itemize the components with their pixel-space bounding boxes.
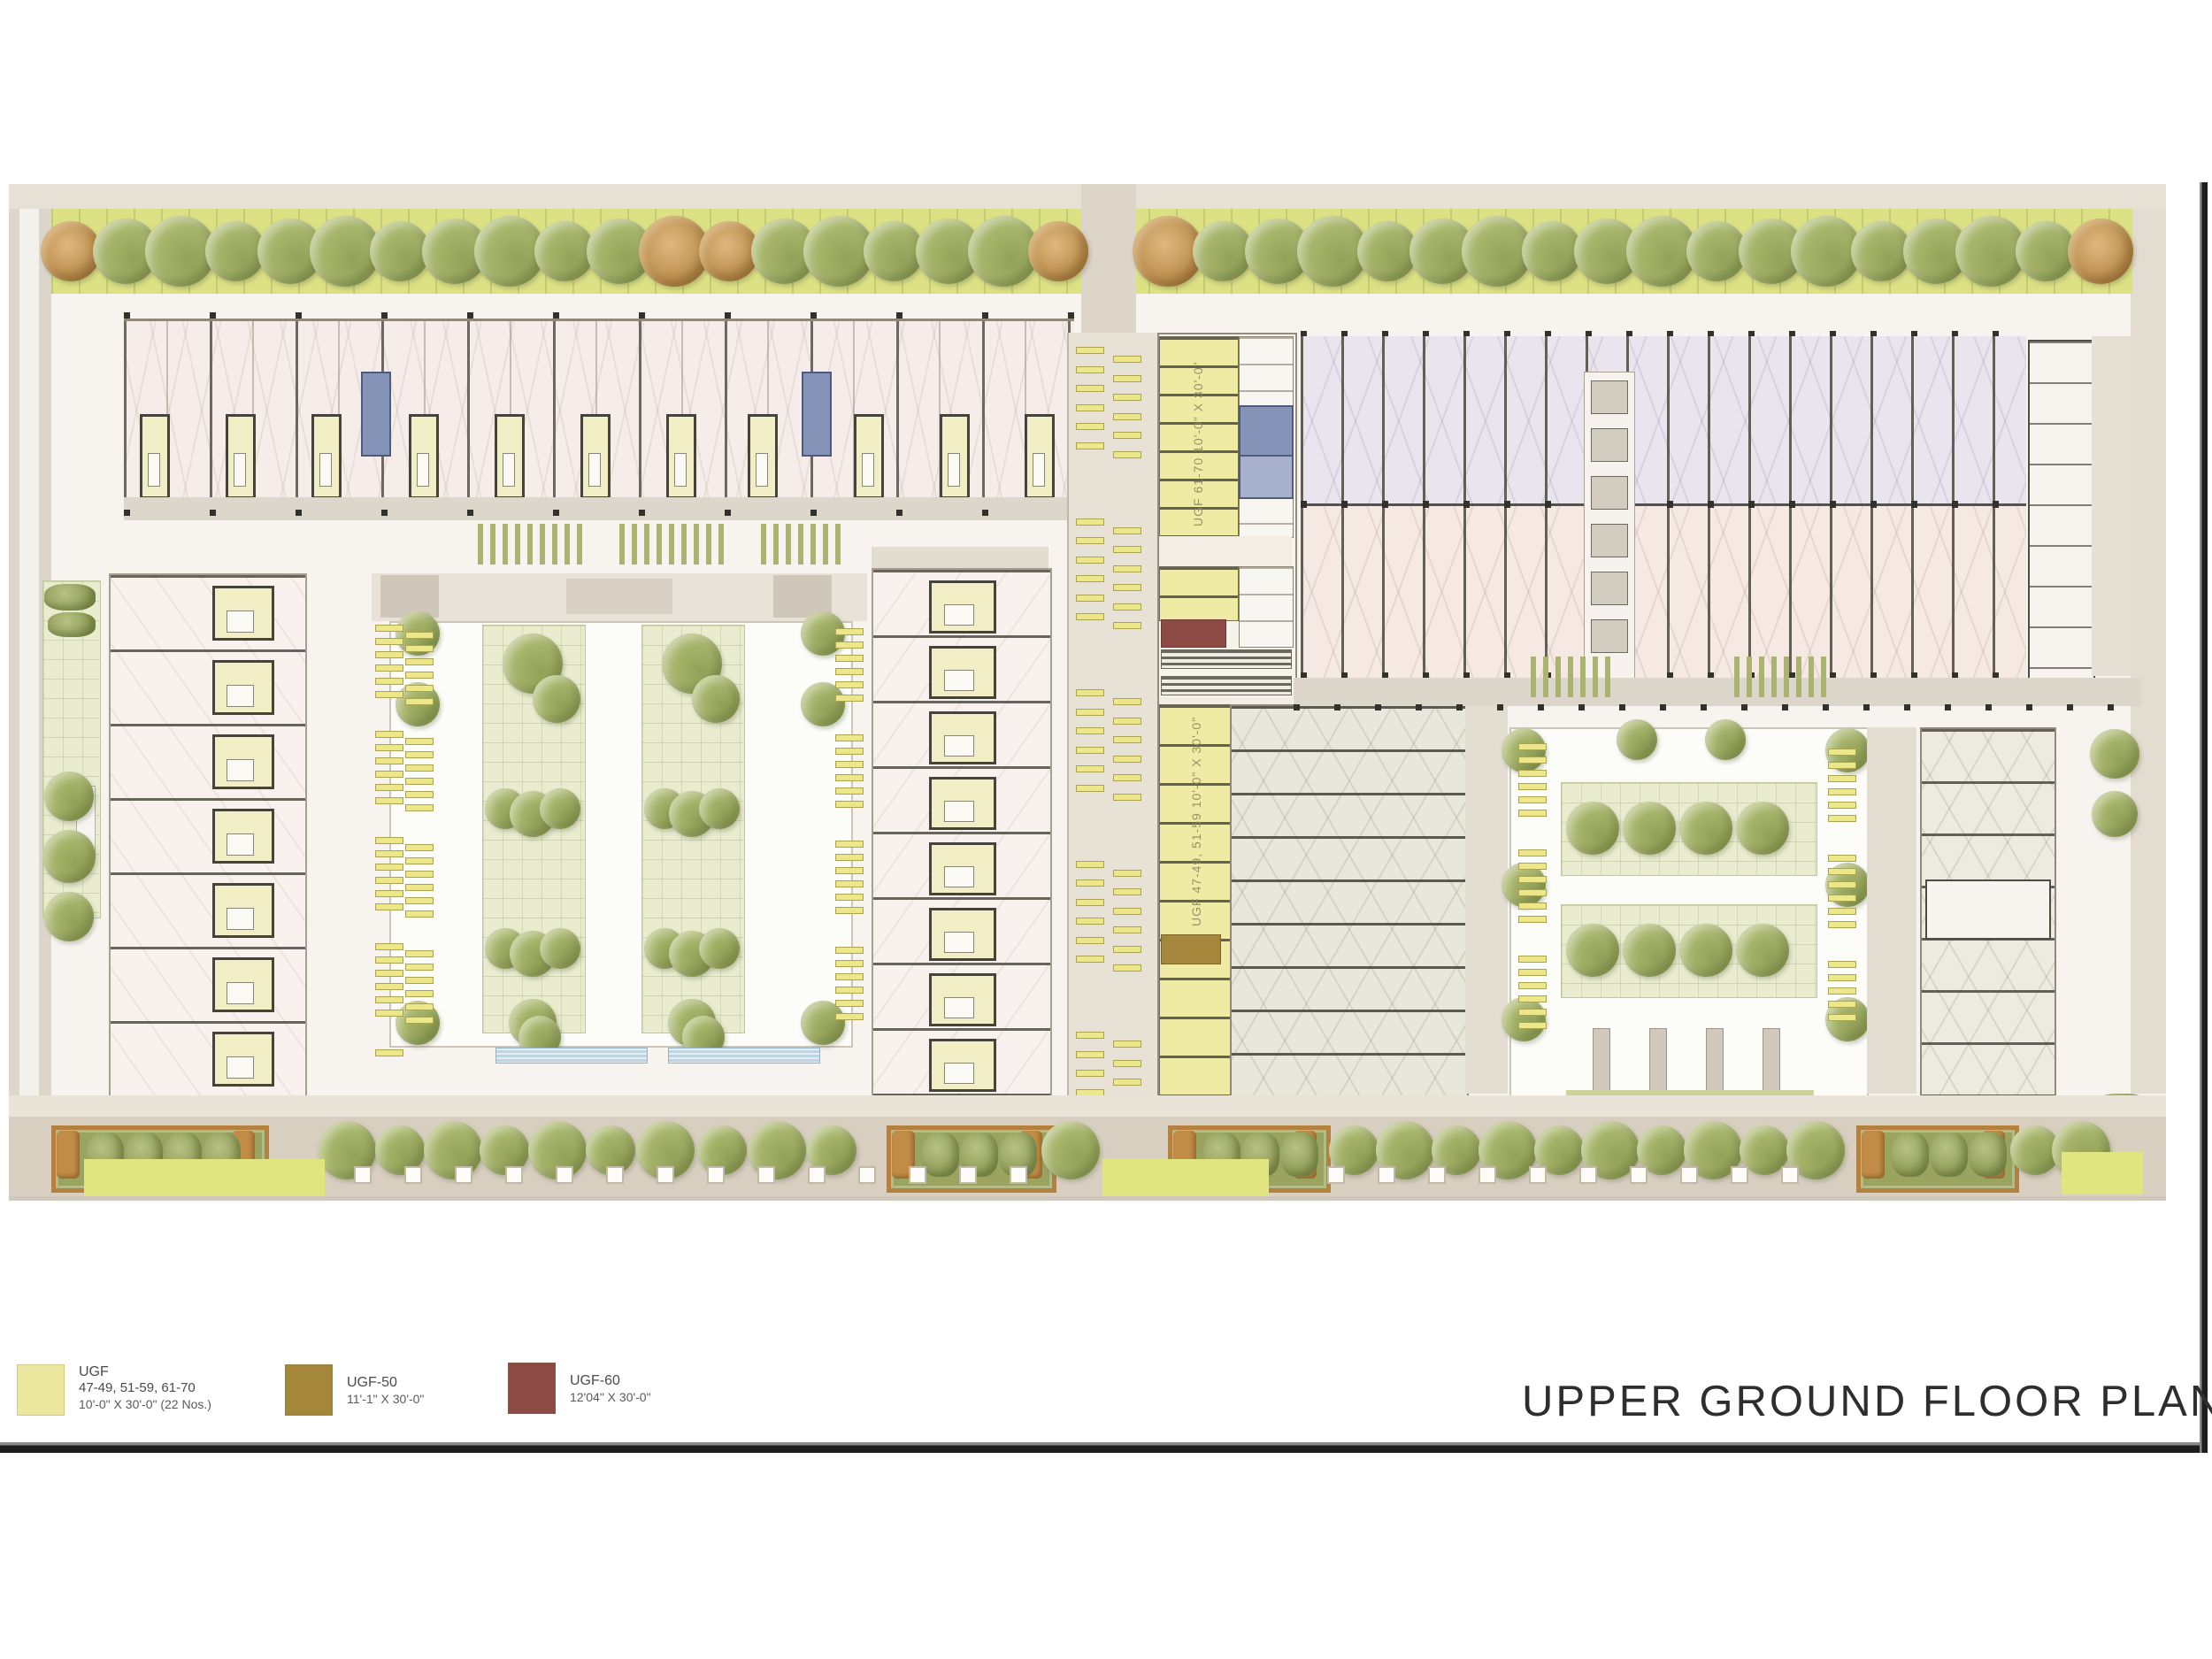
- shop-unit: [929, 646, 996, 699]
- market-hall-lower: [1301, 506, 2026, 678]
- parking-tick: [835, 841, 864, 848]
- unit-door: [148, 453, 161, 487]
- tree-icon: [692, 675, 740, 723]
- legend-size: 12'04" X 30'-0": [570, 1389, 651, 1405]
- hedge: [1281, 1133, 1318, 1177]
- tree-icon: [699, 928, 740, 969]
- paver: [1529, 1166, 1547, 1184]
- parking-tick: [375, 1010, 403, 1017]
- walkway: [2092, 336, 2131, 676]
- parking-tick: [1828, 855, 1856, 862]
- tree-icon: [864, 221, 924, 281]
- pergola-bar: [1593, 1028, 1610, 1092]
- planter-cap: [1862, 1131, 1885, 1179]
- parking-tick: [1076, 347, 1104, 354]
- parking-tick: [1518, 889, 1547, 896]
- parking-tick: [835, 748, 864, 755]
- tree-icon: [44, 772, 94, 821]
- parking-tick: [375, 850, 403, 857]
- parking-tick: [375, 890, 403, 897]
- pergola-bar: [1763, 1028, 1780, 1092]
- legend-swatch-ugf-60: [508, 1363, 556, 1414]
- parking-tick: [375, 877, 403, 884]
- tree-icon: [1357, 221, 1417, 281]
- parking-tick: [375, 956, 403, 964]
- parking-tick: [1113, 1041, 1141, 1048]
- parking-tick: [1076, 595, 1104, 602]
- unit-door: [944, 866, 974, 887]
- unit-range-label-top: UGF 61-70 10'-0" X 30'-0": [1191, 372, 1205, 526]
- parking-tick: [1076, 956, 1104, 963]
- parking-tick: [375, 970, 403, 977]
- hedge-comb: [478, 524, 584, 565]
- unit-door: [319, 453, 333, 487]
- unit-door: [944, 932, 974, 953]
- lawn-strip: [2062, 1152, 2143, 1194]
- legend-item-ugf-50: UGF-50 11'-1" X 30'-0": [285, 1364, 424, 1416]
- parking-tick: [1113, 546, 1141, 553]
- shop-unit: [495, 414, 525, 499]
- orange-tree-icon: [699, 221, 759, 281]
- parking-tick: [1076, 537, 1104, 544]
- parking-tick: [1113, 375, 1141, 382]
- shop-unit: [929, 711, 996, 764]
- tree-icon: [801, 682, 845, 726]
- parking-tick: [1113, 622, 1141, 629]
- parking-tick: [1113, 698, 1141, 705]
- parking-tick: [1113, 926, 1141, 933]
- parking-tick: [1828, 1001, 1856, 1008]
- parking-tick: [1076, 575, 1104, 582]
- lawn-strip: [1102, 1159, 1269, 1196]
- unit-door: [227, 1056, 254, 1078]
- shop-unit: [212, 957, 274, 1012]
- legend-code: UGF-50: [347, 1375, 424, 1391]
- parking-tick: [405, 764, 434, 772]
- unit-door: [862, 453, 875, 487]
- walkway-bottom: [9, 1095, 2166, 1117]
- paver: [1630, 1166, 1647, 1184]
- shop-unit: [929, 908, 996, 961]
- parking-tick: [835, 774, 864, 781]
- parking-tick: [405, 778, 434, 785]
- parking-tick: [405, 884, 434, 891]
- tree-icon: [534, 221, 595, 281]
- legend-item-ugf-60: UGF-60 12'04" X 30'-0": [508, 1363, 651, 1414]
- unit-door: [227, 833, 254, 855]
- shop-unit: [212, 734, 274, 789]
- corridor-room: [1591, 380, 1628, 414]
- shop-unit: [212, 586, 274, 641]
- parking-tick: [1076, 1051, 1104, 1058]
- paver: [1378, 1166, 1395, 1184]
- paver: [1327, 1166, 1345, 1184]
- parking-tick: [1518, 956, 1547, 963]
- parking-tick: [835, 880, 864, 887]
- unit-door: [944, 670, 974, 691]
- parking-tick: [405, 964, 434, 971]
- parking-tick: [1076, 423, 1104, 430]
- parking-tick: [835, 801, 864, 808]
- shop-unit: [212, 1032, 274, 1087]
- parking-tick: [1113, 946, 1141, 953]
- room-cluster: [1925, 879, 2051, 940]
- parking-tick: [1518, 743, 1547, 750]
- unit-door: [503, 453, 516, 487]
- parking-tick: [405, 738, 434, 745]
- parking-tick: [1518, 810, 1547, 817]
- pavilion: [380, 575, 439, 618]
- parking-tick: [1113, 870, 1141, 877]
- shop-unit: [409, 414, 439, 499]
- parking-tick: [1828, 775, 1856, 782]
- market-hall-upper: [1301, 336, 2026, 506]
- parking-tick: [405, 857, 434, 864]
- tree-icon: [801, 1001, 845, 1045]
- parking-tick: [405, 672, 434, 679]
- paver: [354, 1166, 372, 1184]
- parking-tick: [1828, 815, 1856, 822]
- parking-tick: [1828, 788, 1856, 795]
- tree-icon: [2016, 221, 2076, 281]
- unit-door: [588, 453, 602, 487]
- parking-tick: [1113, 718, 1141, 725]
- parking-tick: [1828, 908, 1856, 915]
- legend: UGF 47-49, 51-59, 61-70 10'-0" X 30'-0" …: [0, 1352, 796, 1432]
- unit-door: [227, 759, 254, 780]
- tree-icon: [1502, 728, 1546, 772]
- parking-tick: [835, 973, 864, 980]
- unit-door: [227, 982, 254, 1003]
- shop-unit: [1025, 414, 1055, 499]
- parking-tick: [1518, 995, 1547, 1002]
- parking-tick: [1076, 385, 1104, 392]
- tree-icon: [42, 830, 96, 883]
- pavilion: [566, 579, 672, 614]
- parking-tick: [405, 844, 434, 851]
- parking-tick: [405, 1017, 434, 1024]
- parking-tick: [1076, 879, 1104, 887]
- parking-tick: [1076, 727, 1104, 734]
- unit-door: [944, 801, 974, 822]
- road-left-lane: [19, 209, 39, 1200]
- parking-tick: [375, 864, 403, 871]
- parking-tick: [1828, 987, 1856, 995]
- parking-tick: [405, 897, 434, 904]
- parking-tick: [835, 960, 864, 967]
- corridor-room: [1591, 572, 1628, 605]
- parking-tick: [835, 854, 864, 861]
- shop-unit: [854, 414, 884, 499]
- shop-unit: [748, 414, 778, 499]
- parking-tick: [1076, 899, 1104, 906]
- parking-tick: [1076, 785, 1104, 792]
- orange-tree-icon: [2068, 219, 2133, 284]
- parking-tick: [405, 751, 434, 758]
- legend-size: 10'-0" X 30'-0" (22 Nos.): [79, 1396, 211, 1412]
- parking-tick: [1113, 584, 1141, 591]
- parking-tick: [1076, 709, 1104, 716]
- shop-unit: [212, 809, 274, 864]
- parking-tick: [405, 977, 434, 984]
- parking-tick: [1113, 1060, 1141, 1067]
- water-feature: [495, 1048, 648, 1064]
- tree-icon: [1041, 1121, 1100, 1179]
- stair-core: [802, 372, 832, 457]
- parking-tick: [1518, 863, 1547, 870]
- corridor-room: [1591, 428, 1628, 462]
- parking-tick: [835, 947, 864, 954]
- parking-tick: [375, 797, 403, 804]
- parking-tick: [405, 910, 434, 918]
- paver: [505, 1166, 523, 1184]
- tree-icon: [533, 675, 580, 723]
- paver: [959, 1166, 977, 1184]
- parking-tick: [1518, 1009, 1547, 1016]
- parking-tick: [375, 678, 403, 685]
- parking-tick: [1828, 868, 1856, 875]
- plan-edge: [9, 1196, 2166, 1201]
- tree-icon: [370, 221, 430, 281]
- parking-tick: [1828, 921, 1856, 928]
- parking-tick: [1828, 961, 1856, 968]
- parking-tick: [835, 1013, 864, 1020]
- parking-tick: [1113, 736, 1141, 743]
- paver: [1781, 1166, 1799, 1184]
- parking-tick: [405, 658, 434, 665]
- tree-icon: [2092, 791, 2138, 837]
- walk-gap: [1159, 536, 1292, 566]
- shop-unit: [140, 414, 170, 499]
- unit-door: [227, 685, 254, 706]
- tree-icon: [1502, 997, 1546, 1041]
- tree-icon: [1679, 924, 1732, 977]
- hedge-comb: [1734, 657, 1832, 697]
- tree-icon: [1617, 719, 1657, 760]
- parking-tick: [1518, 982, 1547, 989]
- parking-tick: [1518, 969, 1547, 976]
- pergola-bar: [1649, 1028, 1667, 1092]
- tree-icon: [1679, 802, 1732, 855]
- unit-door: [944, 735, 974, 757]
- strip-head: [872, 547, 1048, 568]
- hedge: [1931, 1133, 1968, 1177]
- paver: [1010, 1166, 1027, 1184]
- legend-item-ugf: UGF 47-49, 51-59, 61-70 10'-0" X 30'-0" …: [17, 1364, 211, 1416]
- parking-tick: [1076, 404, 1104, 411]
- parking-tick: [375, 903, 403, 910]
- sheet-border-right: [2200, 182, 2208, 1453]
- paver: [707, 1166, 725, 1184]
- unit-door: [948, 453, 961, 487]
- parking-tick: [1076, 918, 1104, 925]
- parking-tick: [1113, 908, 1141, 915]
- parking-tick: [375, 784, 403, 791]
- parking-tick: [405, 990, 434, 997]
- escalator: [1161, 649, 1292, 669]
- parking-tick: [1518, 757, 1547, 764]
- parking-tick: [1076, 937, 1104, 944]
- walkway: [124, 497, 1074, 520]
- legend-units: 47-49, 51-59, 61-70: [79, 1380, 211, 1396]
- tree-icon: [1566, 924, 1619, 977]
- paver: [1428, 1166, 1446, 1184]
- tree-icon: [2090, 729, 2139, 779]
- parking-tick: [1518, 849, 1547, 856]
- shop-unit: [929, 842, 996, 895]
- lift-core: [1239, 455, 1294, 499]
- parking-tick: [835, 894, 864, 901]
- paver: [858, 1166, 876, 1184]
- hedge: [1892, 1133, 1929, 1177]
- parking-tick: [835, 734, 864, 741]
- drawing-sheet: UGF 61-70 10'-0" X 30'-0" UGF 47-49, 51-…: [0, 0, 2212, 1659]
- parking-tick: [375, 1049, 403, 1056]
- parking-tick: [1113, 413, 1141, 420]
- parking-tick: [1828, 1014, 1856, 1021]
- parking-tick: [835, 867, 864, 874]
- tree-icon: [540, 928, 580, 969]
- parking-tick: [1076, 442, 1104, 449]
- parking-tick: [1113, 527, 1141, 534]
- unit-door: [1033, 453, 1046, 487]
- parking-tick: [405, 1003, 434, 1010]
- parking-tick: [1518, 796, 1547, 803]
- paver: [1680, 1166, 1698, 1184]
- unit-door: [227, 908, 254, 929]
- tree-icon: [1623, 802, 1676, 855]
- shop-unit: [929, 777, 996, 830]
- parking-tick: [835, 681, 864, 688]
- tree-icon: [1623, 924, 1676, 977]
- parking-tick: [1113, 432, 1141, 439]
- parking-tick: [1828, 749, 1856, 756]
- legend-code: UGF-60: [570, 1373, 651, 1389]
- walkway: [1294, 678, 2141, 706]
- parking-tick: [405, 950, 434, 957]
- ugf-units: [1159, 566, 1239, 621]
- hedge: [1970, 1133, 2007, 1177]
- service-rooms: [1239, 566, 1294, 648]
- paver: [808, 1166, 826, 1184]
- unit-door: [417, 453, 430, 487]
- parking-tick: [1113, 888, 1141, 895]
- tree-icon: [1736, 802, 1789, 855]
- parking-tick: [835, 987, 864, 994]
- tree-icon: [748, 1121, 806, 1179]
- sheet-border-bottom: [0, 1442, 2207, 1453]
- parking-tick: [1113, 356, 1141, 363]
- parking-tick: [835, 907, 864, 914]
- shop-unit: [940, 414, 970, 499]
- tree-icon: [1705, 719, 1746, 760]
- parking-tick: [1518, 1022, 1547, 1029]
- road: [1867, 727, 1916, 1094]
- parking-tick: [835, 1000, 864, 1007]
- unit-door: [944, 604, 974, 626]
- parking-tick: [1113, 964, 1141, 972]
- water-feature: [668, 1048, 820, 1064]
- parking-tick: [1518, 916, 1547, 923]
- parking-tick: [835, 628, 864, 635]
- parking-tick: [1076, 518, 1104, 526]
- tree-icon: [1736, 924, 1789, 977]
- ugf-60-unit: [1161, 619, 1226, 648]
- shop-unit: [929, 1039, 996, 1092]
- parking-tick: [1076, 366, 1104, 373]
- paver: [1731, 1166, 1748, 1184]
- stall-hall-mid: [1230, 704, 1469, 1097]
- parking-tick: [1113, 603, 1141, 611]
- parking-tick: [1113, 794, 1141, 801]
- hedge: [44, 584, 96, 611]
- paver: [606, 1166, 624, 1184]
- parking-tick: [375, 691, 403, 698]
- tree-icon: [1193, 221, 1253, 281]
- parking-tick: [1113, 394, 1141, 401]
- parking-tick: [375, 943, 403, 950]
- paver: [404, 1166, 422, 1184]
- unit-door: [234, 453, 247, 487]
- parking-tick: [405, 645, 434, 652]
- hedge-comb: [1531, 657, 1610, 697]
- parking-tick: [405, 632, 434, 639]
- tree-icon: [1851, 221, 1911, 281]
- parking-tick: [835, 695, 864, 702]
- parking-tick: [1113, 1079, 1141, 1086]
- corridor-room: [1591, 619, 1628, 653]
- courtyard-left: [389, 621, 853, 1048]
- legend-code: UGF: [79, 1364, 211, 1380]
- paver: [757, 1166, 775, 1184]
- parking-tick: [1518, 783, 1547, 790]
- paver: [909, 1166, 926, 1184]
- parking-tick: [1113, 756, 1141, 763]
- parking-tick: [1828, 895, 1856, 902]
- parking-tick: [375, 744, 403, 751]
- shop-unit: [929, 580, 996, 634]
- shop-unit: [212, 883, 274, 938]
- unit-door: [944, 1063, 974, 1084]
- parking-tick: [375, 664, 403, 672]
- parking-tick: [1828, 881, 1856, 888]
- shop-unit: [212, 660, 274, 715]
- parking-tick: [1076, 613, 1104, 620]
- unit-door: [756, 453, 769, 487]
- parking-tick: [375, 983, 403, 990]
- paver: [1479, 1166, 1496, 1184]
- column-dots: [124, 510, 1074, 516]
- tree-icon: [1686, 221, 1747, 281]
- escalator: [1161, 676, 1292, 695]
- parking-tick: [405, 871, 434, 878]
- tree-icon: [424, 1121, 482, 1179]
- corridor-room: [1591, 524, 1628, 557]
- parking-tick: [835, 787, 864, 795]
- parking-tick: [1076, 557, 1104, 564]
- tree-icon: [1566, 802, 1619, 855]
- road-central-entry: [1081, 184, 1136, 333]
- tree-icon: [44, 892, 94, 941]
- parking-tick: [1076, 765, 1104, 772]
- parking-tick: [1076, 861, 1104, 868]
- ugf-50-unit: [1161, 934, 1221, 964]
- stair-core: [1239, 405, 1294, 457]
- shop-unit: [226, 414, 256, 499]
- parking-tick: [375, 771, 403, 778]
- planter-cap: [57, 1131, 80, 1179]
- walkway: [1465, 704, 1508, 1094]
